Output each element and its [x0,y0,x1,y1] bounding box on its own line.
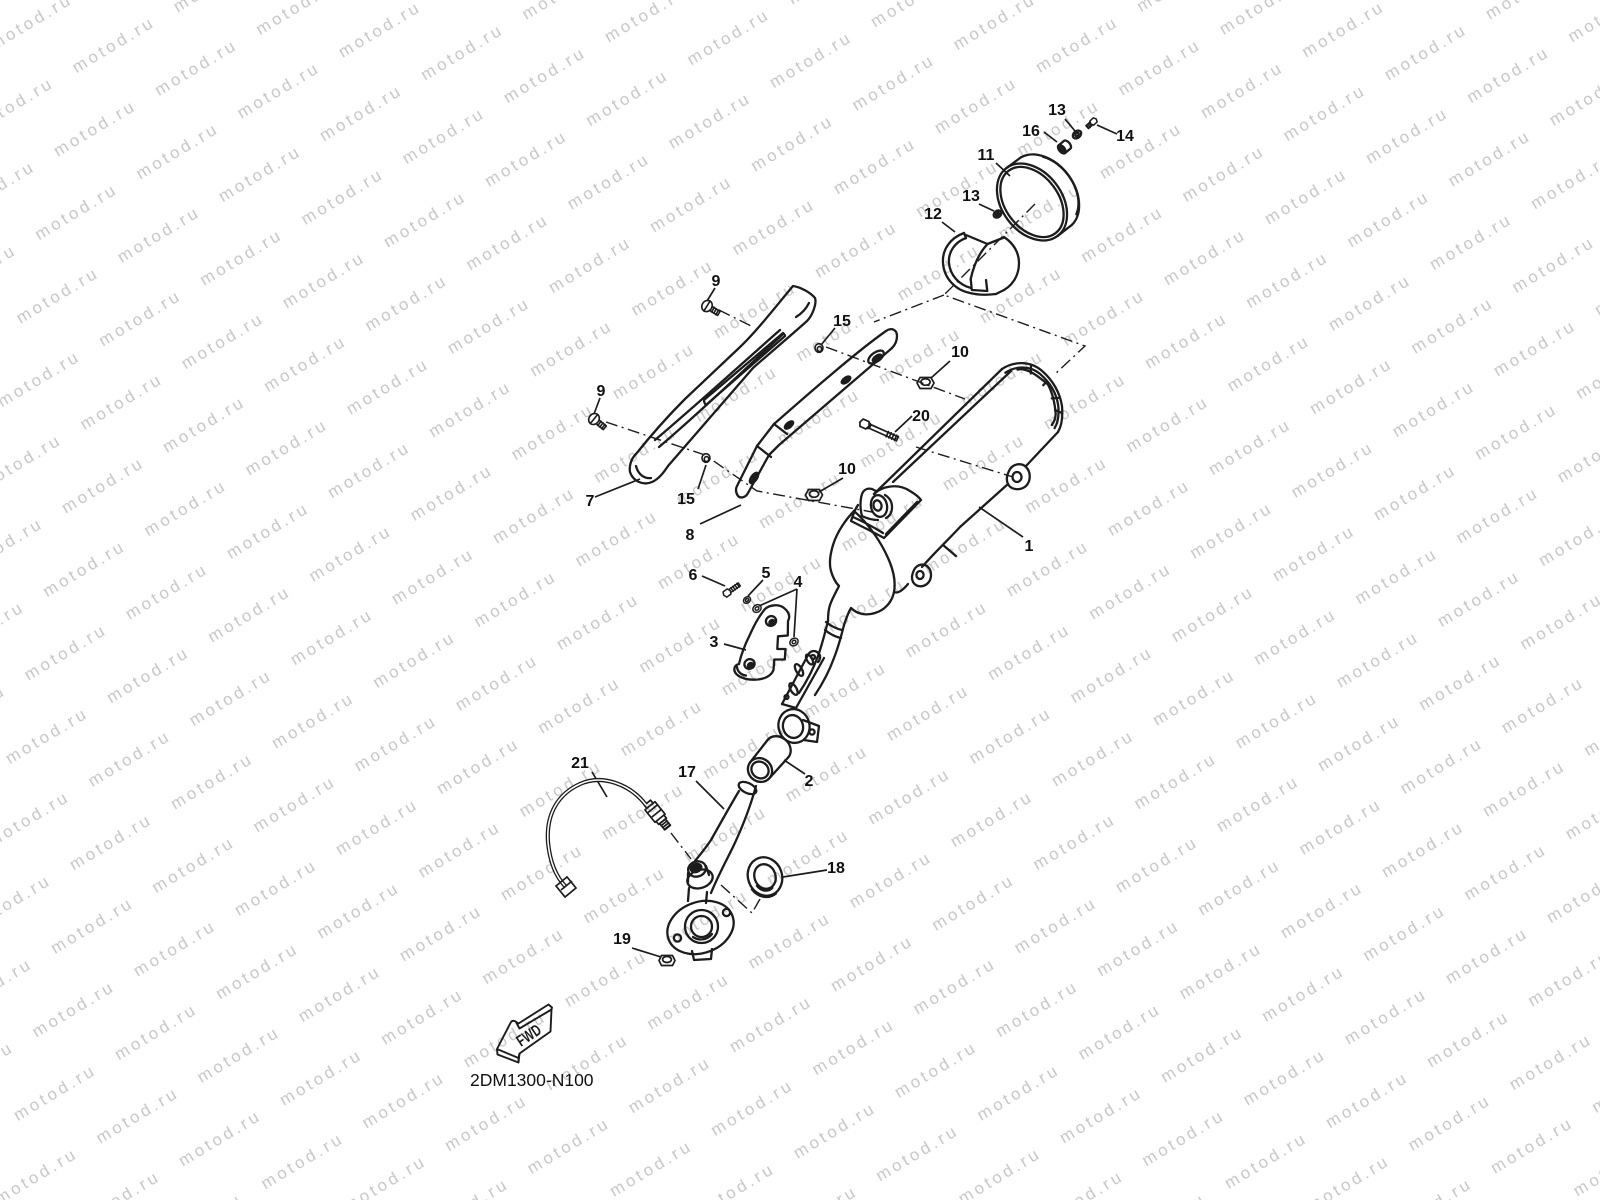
svg-text:7: 7 [586,493,595,510]
svg-text:13: 13 [962,188,980,205]
svg-text:15: 15 [677,491,695,508]
svg-text:15: 15 [833,313,851,330]
svg-text:19: 19 [613,931,631,948]
svg-text:8: 8 [686,527,695,544]
svg-text:21: 21 [571,755,589,772]
svg-text:16: 16 [1022,123,1040,140]
svg-text:4: 4 [794,574,803,591]
svg-text:3: 3 [710,634,719,651]
svg-text:1: 1 [1025,538,1034,555]
svg-text:9: 9 [712,273,721,290]
svg-text:12: 12 [924,206,942,223]
svg-text:2: 2 [805,773,814,790]
svg-text:17: 17 [678,764,696,781]
svg-text:18: 18 [827,860,845,877]
svg-text:10: 10 [951,344,969,361]
svg-text:20: 20 [912,408,930,425]
svg-text:10: 10 [838,461,856,478]
svg-text:6: 6 [689,567,698,584]
svg-text:14: 14 [1116,128,1134,145]
svg-text:2DM1300-N100: 2DM1300-N100 [470,1070,594,1090]
svg-text:11: 11 [978,147,995,164]
svg-text:5: 5 [762,565,771,582]
svg-text:13: 13 [1048,102,1066,119]
svg-text:9: 9 [597,383,606,400]
